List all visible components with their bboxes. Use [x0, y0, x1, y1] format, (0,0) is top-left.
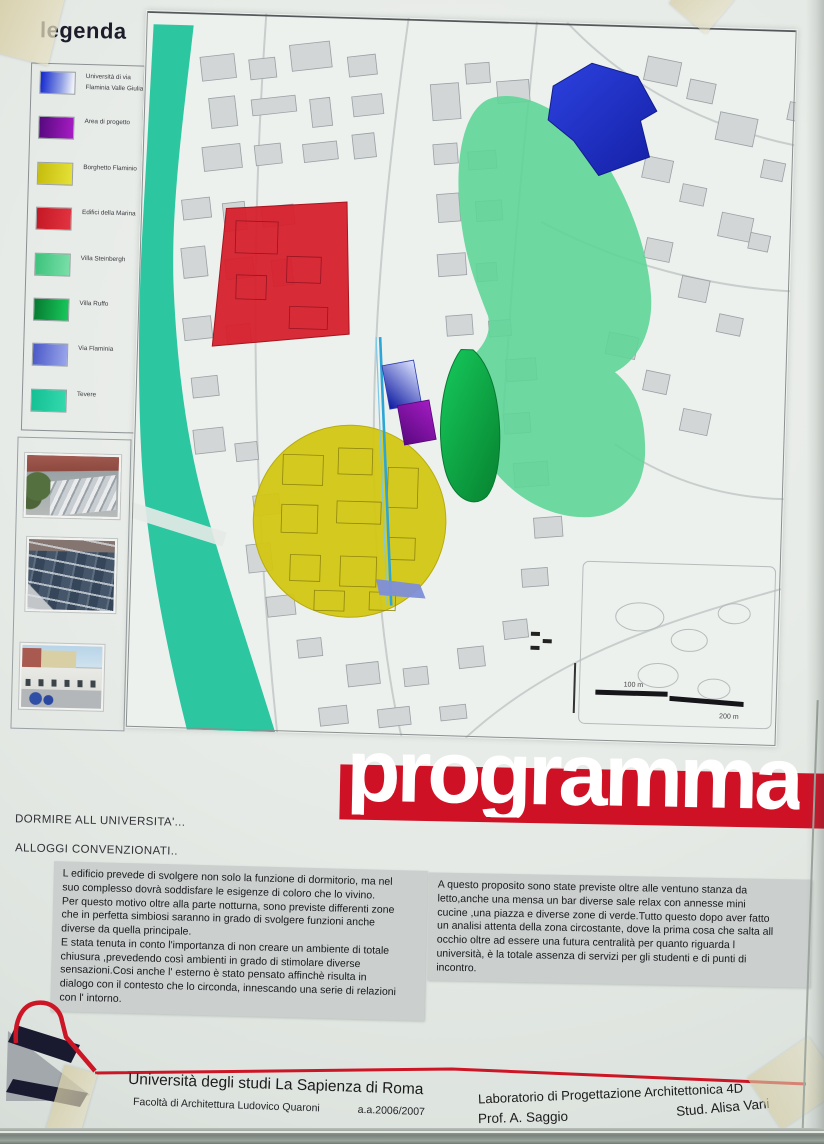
- legend-label: Edifici della Marina: [82, 208, 140, 221]
- footer-year: a.a.2006/2007: [358, 1104, 426, 1118]
- legend-swatch-borghetto: [37, 161, 74, 185]
- photo-strip: [10, 437, 131, 732]
- legend-box: Università di via Flaminia Valle Giulia …: [21, 62, 145, 433]
- legend-item: Tevere: [22, 388, 135, 437]
- photo-aerial-market-roofs: [25, 537, 117, 613]
- programma-title: programma: [345, 725, 800, 823]
- footer-university: Università degli studi La Sapienza di Ro…: [128, 1071, 424, 1099]
- scale-label-100: 100 m: [624, 681, 644, 689]
- footer-faculty: Facoltà di Architettura Ludovico Quaroni: [133, 1096, 320, 1115]
- legend-label: Via Flaminia: [78, 344, 136, 357]
- photo-aerial-borghetto: [24, 453, 122, 519]
- legend-item: Area di progetto: [29, 116, 142, 165]
- legend-label: Borghetto Flaminio: [83, 163, 141, 176]
- legend-item: Villa Ruffo: [24, 297, 137, 346]
- legend-label: Villa Steinbergh: [81, 254, 139, 267]
- legend-item: Villa Steinbergh: [26, 252, 139, 301]
- legend-swatch-steinbergh: [34, 252, 71, 276]
- legend-swatch-via-flaminia: [32, 343, 69, 367]
- poster: legenda Università di via Flaminia Valle…: [0, 0, 824, 1130]
- legend-label: Villa Ruffo: [79, 299, 137, 312]
- footer-student: Stud. Alisa Vani: [676, 1096, 771, 1119]
- legend-item: Università di via Flaminia Valle Giulia: [31, 71, 144, 120]
- legend-label: Tevere: [77, 390, 135, 403]
- logo-dark-bar-top: [8, 1025, 80, 1063]
- legend-swatch-tevere: [30, 388, 67, 412]
- legend-swatch-universita: [39, 71, 76, 95]
- logo-red-ribbon: [16, 1003, 95, 1071]
- footer-professor: Prof. A. Saggio: [478, 1109, 568, 1126]
- heading-dormire: DORMIRE ALL UNIVERSITA'...: [15, 813, 186, 829]
- site-plan-map: 100 m 200 m: [125, 10, 798, 747]
- right-shadow: [806, 0, 824, 1130]
- zone-edifici-marina: [212, 198, 353, 350]
- heading-alloggi: ALLOGGI CONVENZIONATI..: [15, 842, 178, 857]
- zone-area-di-progetto: [397, 400, 436, 445]
- legend-item: Edifici della Marina: [27, 207, 140, 256]
- scale-label-200: 200 m: [719, 713, 739, 721]
- photo-street-colonnade: [19, 643, 105, 711]
- legend-swatch-area-progetto: [38, 116, 75, 140]
- legend-item: Borghetto Flaminio: [28, 161, 141, 210]
- legend-label: Area di progetto: [84, 117, 142, 130]
- programma-banner: programma: [339, 747, 824, 828]
- legend-swatch-ruffo: [33, 298, 70, 322]
- photo-backdrop: legenda Università di via Flaminia Valle…: [0, 0, 824, 1144]
- legend-item: Via Flaminia: [23, 343, 136, 392]
- table-edge: [0, 1128, 824, 1144]
- legend-label: Università di via Flaminia Valle Giulia: [85, 72, 144, 95]
- paragraph-left: L edificio prevede di svolgere non solo …: [50, 861, 428, 1020]
- footer-faculty-line: Facoltà di Architettura Ludovico Quaroni…: [133, 1096, 425, 1118]
- legend-swatch-marina: [35, 207, 72, 231]
- paragraph-right: A questo proposito sono state previste o…: [427, 872, 812, 988]
